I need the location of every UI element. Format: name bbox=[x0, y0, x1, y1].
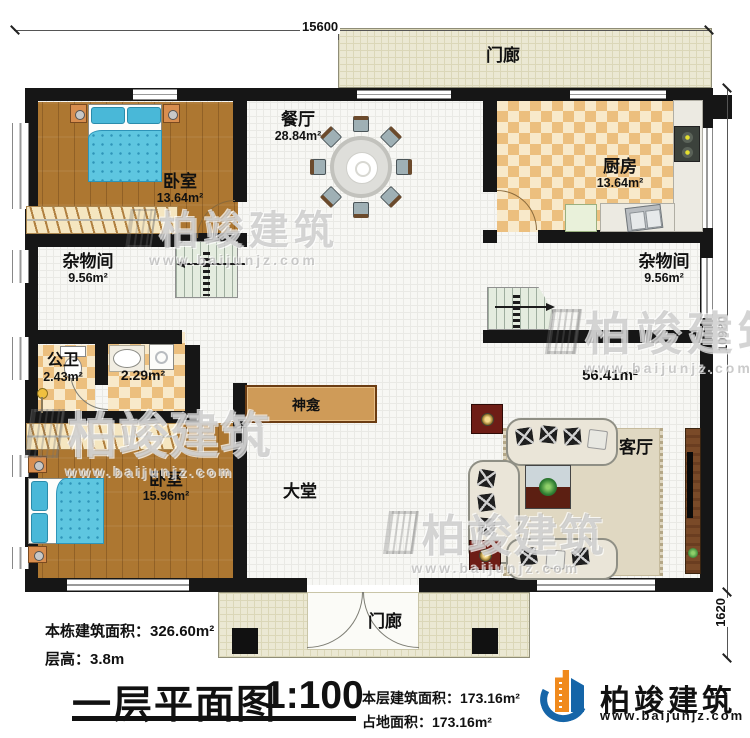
room-name: 神龛 bbox=[261, 398, 351, 414]
staircase-right-rail bbox=[513, 295, 520, 328]
sink-basin bbox=[629, 211, 646, 231]
room-label-bedroom-bottom: 卧室 15.96m² bbox=[116, 470, 216, 503]
stair-arrow bbox=[495, 306, 547, 308]
wall-lamp bbox=[37, 388, 48, 399]
sofa-cushion bbox=[571, 547, 590, 566]
room-label-living: 客厅 bbox=[596, 438, 676, 457]
dimension-line-right bbox=[727, 88, 728, 658]
room-area: 15.96m² bbox=[116, 489, 216, 503]
window bbox=[12, 250, 29, 283]
dimension-height: 10980 bbox=[714, 316, 732, 352]
stair-arrow-head bbox=[176, 260, 185, 268]
pillow bbox=[31, 481, 48, 511]
stair-arrow bbox=[183, 263, 245, 265]
wall-kitchen-bottom bbox=[483, 230, 497, 243]
window bbox=[570, 90, 666, 99]
pillow bbox=[91, 107, 125, 124]
stair-arrow-head bbox=[546, 303, 555, 311]
ceiling-light-ring bbox=[355, 161, 371, 177]
room-name: 公卫 bbox=[18, 352, 108, 370]
kitchen-sink bbox=[625, 204, 664, 232]
dimension-line-top bbox=[14, 30, 710, 31]
nightstand bbox=[28, 546, 47, 563]
room-label-laundry: 2.29m² bbox=[98, 368, 188, 384]
room-name: 厨房 bbox=[570, 157, 670, 176]
pillow bbox=[31, 513, 48, 543]
open-area-label: 56.41m² bbox=[560, 368, 660, 385]
wall-bath-bottom bbox=[25, 411, 200, 423]
room-label-shrine: 神龛 bbox=[261, 398, 351, 414]
room-label-bathroom: 公卫 2.43m² bbox=[18, 352, 108, 384]
wardrobe bbox=[26, 423, 178, 450]
room-name: 客厅 bbox=[596, 438, 676, 457]
footprint-area-note: 占地面积：173.16m² bbox=[362, 712, 492, 732]
floor-plan-canvas: 卧室 13.64m² 餐厅 28.84m² 厨房 13.64m² 杂物间 9.5… bbox=[0, 0, 750, 738]
nightstand bbox=[70, 104, 87, 123]
room-name: 杂物间 bbox=[614, 252, 714, 271]
room-label-dining: 餐厅 28.84m² bbox=[248, 110, 348, 143]
room-label-porch-bottom: 门廊 bbox=[350, 612, 420, 631]
title-underline bbox=[72, 716, 356, 721]
kitchen-counter bbox=[673, 100, 703, 232]
porch-column bbox=[232, 628, 258, 654]
washer-door bbox=[155, 351, 168, 364]
room-label-storage-left: 杂物间 9.56m² bbox=[38, 252, 138, 285]
total-area-note: 本栋建筑面积：326.60m² bbox=[45, 620, 214, 641]
window bbox=[12, 547, 29, 569]
dimension-width: 15600 bbox=[300, 20, 340, 34]
sofa-cushion bbox=[515, 427, 534, 446]
side-cabinet bbox=[469, 540, 501, 570]
burner bbox=[682, 147, 693, 158]
room-label-storage-right: 杂物间 9.56m² bbox=[614, 252, 714, 285]
sofa-cushion bbox=[539, 425, 558, 444]
dimension-porch-depth: 1620 bbox=[712, 598, 730, 627]
pillow bbox=[127, 107, 161, 124]
room-label-porch-top: 门廊 bbox=[468, 46, 538, 65]
sofa-cushion bbox=[545, 549, 565, 569]
washbasin bbox=[113, 349, 141, 368]
sofa-cushion bbox=[477, 469, 497, 489]
window bbox=[133, 89, 177, 100]
blanket bbox=[56, 478, 104, 544]
room-name: 门廊 bbox=[350, 612, 420, 631]
dining-chair bbox=[396, 159, 412, 175]
wall-pier bbox=[710, 95, 732, 119]
plan-scale: 1:100 bbox=[264, 674, 364, 718]
room-area: 2.43m² bbox=[18, 370, 108, 384]
window bbox=[67, 579, 189, 591]
floor-height-note: 层高：3.8m bbox=[45, 648, 124, 669]
sofa-cushion bbox=[519, 547, 538, 566]
room-area: 28.84m² bbox=[248, 129, 348, 143]
dining-chair bbox=[353, 116, 369, 132]
room-area: 9.56m² bbox=[614, 271, 714, 285]
room-area: 13.64m² bbox=[570, 176, 670, 190]
room-name: 大堂 bbox=[255, 482, 345, 501]
room-name: 门廊 bbox=[468, 46, 538, 65]
sofa-cushion bbox=[477, 493, 496, 512]
room-name: 杂物间 bbox=[38, 252, 138, 271]
window bbox=[537, 579, 655, 591]
room-name: 卧室 bbox=[116, 470, 216, 489]
floor-area-note: 本层建筑面积：173.16m² bbox=[362, 688, 520, 708]
room-label-bedroom-top: 卧室 13.64m² bbox=[130, 172, 230, 205]
plan-title: 一层平面图 bbox=[72, 674, 277, 730]
room-name: 卧室 bbox=[130, 172, 230, 191]
dining-chair bbox=[310, 159, 326, 175]
sliding-door bbox=[357, 90, 451, 99]
stove bbox=[674, 126, 700, 162]
sofa-cushion bbox=[563, 427, 581, 445]
wall-kitchen-left bbox=[483, 95, 497, 192]
small-plant bbox=[688, 548, 698, 558]
wall-stair-right-bottom bbox=[483, 330, 703, 343]
window bbox=[12, 455, 29, 477]
company-logo bbox=[538, 666, 598, 730]
burner bbox=[682, 132, 693, 143]
room-label-kitchen: 厨房 13.64m² bbox=[570, 157, 670, 190]
wardrobe bbox=[26, 206, 178, 234]
tv bbox=[687, 452, 693, 518]
staircase-left-rail bbox=[203, 252, 210, 296]
wall-bedroom-top-right bbox=[233, 95, 247, 202]
company-website: www.baijunjz.com bbox=[600, 708, 744, 723]
room-area: 56.41m² bbox=[560, 368, 660, 385]
sofa-cushion bbox=[477, 517, 495, 535]
room-area: 2.29m² bbox=[98, 368, 188, 384]
room-area: 13.64m² bbox=[130, 191, 230, 205]
porch-column bbox=[472, 628, 498, 654]
window bbox=[12, 123, 29, 209]
sink-basin bbox=[645, 209, 662, 229]
room-label-hall: 大堂 bbox=[255, 482, 345, 501]
side-cabinet bbox=[471, 404, 503, 434]
dining-chair bbox=[353, 202, 369, 218]
room-area: 9.56m² bbox=[38, 271, 138, 285]
nightstand bbox=[28, 456, 47, 473]
room-name: 餐厅 bbox=[248, 110, 348, 129]
nightstand bbox=[163, 104, 180, 123]
cutting-board bbox=[565, 204, 597, 232]
wall-lamp-stem bbox=[41, 397, 43, 413]
potted-plant bbox=[539, 478, 557, 496]
